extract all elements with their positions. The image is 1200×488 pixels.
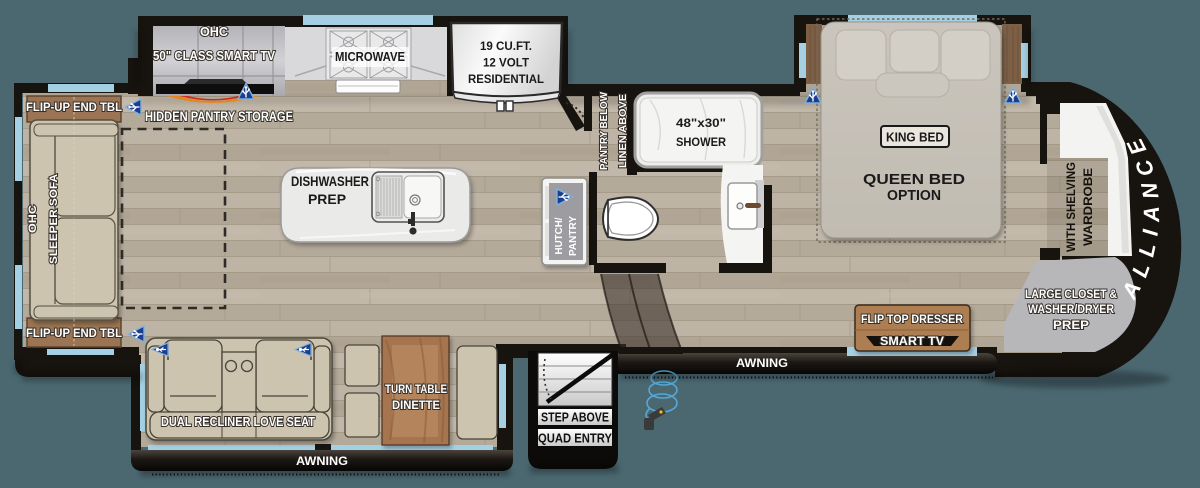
svg-text:HUTCH/: HUTCH/ [554, 217, 565, 254]
svg-text:DUAL RECLINER LOVE SEAT: DUAL RECLINER LOVE SEAT [161, 414, 315, 429]
svg-text:50" CLASS SMART TV: 50" CLASS SMART TV [153, 48, 275, 63]
svg-text:FLIP TOP DRESSER: FLIP TOP DRESSER [861, 312, 963, 326]
svg-text:KING BED: KING BED [886, 130, 944, 145]
svg-text:LINEN ABOVE: LINEN ABOVE [617, 94, 629, 168]
svg-text:WITH SHELVING: WITH SHELVING [1066, 162, 1078, 252]
svg-text:QUAD ENTRY: QUAD ENTRY [538, 431, 612, 446]
svg-text:12 VOLT: 12 VOLT [483, 56, 530, 70]
svg-text:DISHWASHER: DISHWASHER [291, 173, 369, 189]
svg-text:FLIP-UP END TBL: FLIP-UP END TBL [26, 326, 122, 340]
svg-text:QUEEN BED: QUEEN BED [863, 171, 965, 188]
svg-text:OHC: OHC [200, 25, 228, 39]
svg-text:OPTION: OPTION [887, 188, 941, 204]
svg-text:SMART TV: SMART TV [880, 334, 944, 348]
svg-text:PANTRY BELOW: PANTRY BELOW [598, 92, 610, 170]
svg-text:PREP: PREP [1053, 318, 1089, 332]
svg-text:TURN TABLE: TURN TABLE [385, 382, 447, 396]
svg-text:19 CU.FT.: 19 CU.FT. [480, 39, 532, 53]
svg-text:RESIDENTIAL: RESIDENTIAL [468, 72, 544, 86]
svg-text:STEP ABOVE: STEP ABOVE [541, 410, 609, 425]
svg-text:SLEEPER SOFA: SLEEPER SOFA [48, 174, 60, 264]
svg-text:AWNING: AWNING [736, 356, 788, 370]
svg-text:AWNING: AWNING [296, 454, 348, 468]
svg-text:OHC: OHC [27, 205, 39, 233]
svg-text:DINETTE: DINETTE [392, 398, 440, 412]
svg-text:MICROWAVE: MICROWAVE [335, 50, 405, 64]
svg-text:WARDROBE: WARDROBE [1083, 168, 1095, 246]
svg-text:PREP: PREP [308, 191, 346, 207]
svg-text:LARGE CLOSET &: LARGE CLOSET & [1025, 287, 1117, 301]
svg-text:WASHER/DRYER: WASHER/DRYER [1028, 302, 1114, 316]
svg-text:SHOWER: SHOWER [676, 137, 727, 149]
svg-text:HIDDEN PANTRY STORAGE: HIDDEN PANTRY STORAGE [145, 109, 293, 124]
svg-text:48"x30": 48"x30" [676, 118, 726, 130]
svg-text:PANTRY: PANTRY [568, 216, 579, 256]
svg-text:FLIP-UP END TBL: FLIP-UP END TBL [26, 100, 122, 114]
